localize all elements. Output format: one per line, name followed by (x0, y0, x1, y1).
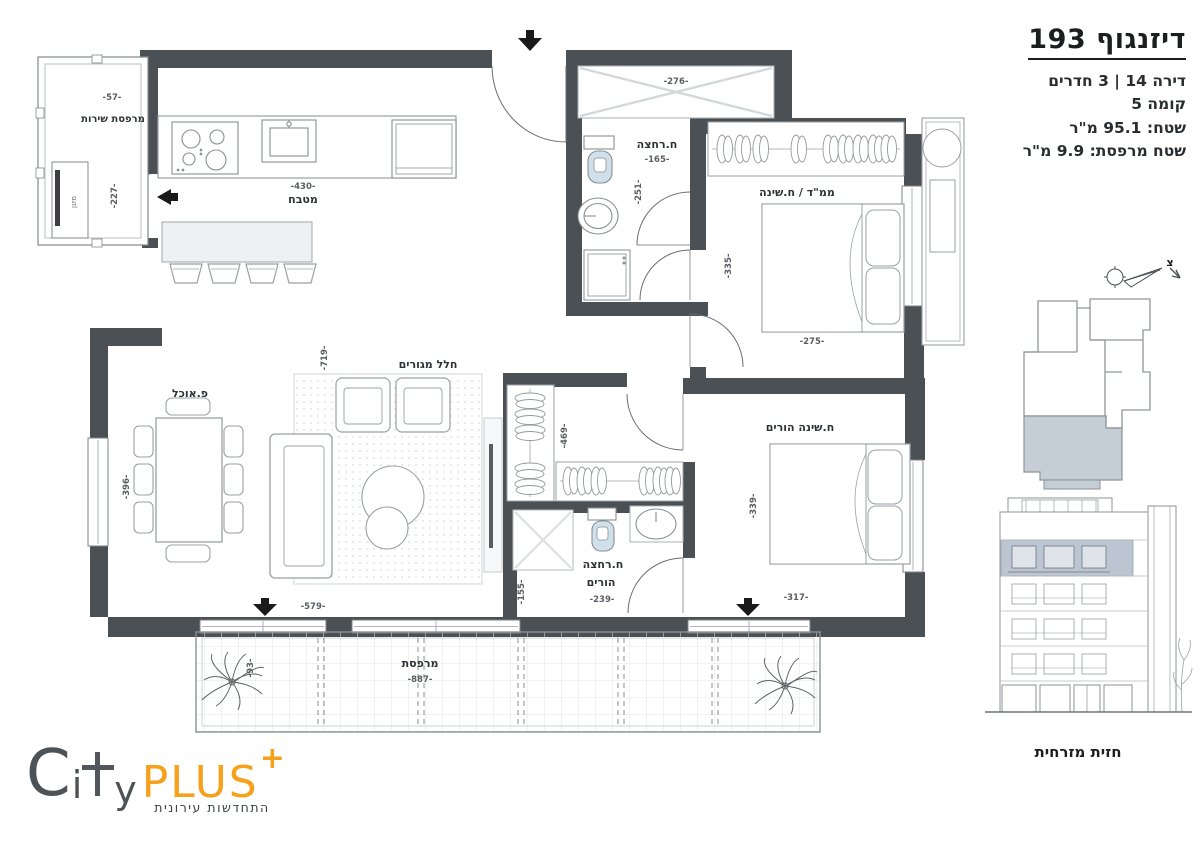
logo-word-plus: PLUS (142, 765, 259, 800)
parents-bedroom-dim-w: -317- (784, 593, 809, 603)
key-plan: צ (1024, 256, 1180, 489)
parents-bathroom-dim-w: -239- (590, 595, 615, 605)
parents-bathroom-dim-h: -155- (517, 579, 527, 604)
living-dim-h: -719- (320, 345, 330, 370)
entrance (518, 30, 542, 51)
parents-bedroom-label: ח.שינה הורים (766, 421, 835, 434)
bathroom-dim-h: -251- (634, 179, 644, 204)
mamad-dim-h: -335- (724, 253, 734, 278)
parents-bedroom: ח.שינה הורים -339- -317- (736, 421, 910, 616)
parents-bathroom-label-2: הורים (587, 576, 616, 589)
mamad-bedroom: ממ"ד / ח.שינה -335- -275- (708, 122, 904, 347)
kitchen-dim: -430- (291, 182, 316, 192)
bedroom-closet (708, 122, 904, 176)
shower-icon (513, 510, 573, 570)
north-arrow-icon (1104, 266, 1180, 288)
building-elevation: חזית מזרחית (985, 498, 1192, 761)
tv-unit-icon (484, 418, 502, 572)
service-balcony: מזגן -57- מרפסת שירות -227- (36, 55, 148, 247)
logo-letter-c: C (26, 748, 71, 800)
service-balcony-dim-w: -57- (103, 93, 122, 103)
bathroom: ח.רחצה -165- -251- (578, 136, 677, 300)
floor-info: קומה 5 (1023, 93, 1186, 116)
kitchen-island (162, 222, 316, 283)
balcony-label: מרפסת (402, 657, 439, 670)
condenser-balcony (922, 118, 964, 345)
kitchen: -430- מטבח (157, 116, 456, 283)
apartment-info: דירה 14 | 3 חדרים (1023, 70, 1186, 93)
dining-area: פ.אוכל -396- (122, 387, 243, 562)
mamad-label: ממ"ד / ח.שינה (759, 186, 835, 199)
parents-bedroom-dim-h: -339- (749, 493, 759, 518)
logo-letter-y: y (114, 780, 137, 801)
balcony-exit-arrow (253, 604, 277, 616)
coffee-table-icon (366, 507, 408, 549)
balcony-area-info: שטח מרפסת: 9.9 מ"ר (1023, 140, 1186, 163)
kitchen-label: מטבח (288, 193, 318, 206)
balcony-dim-h: -93- (246, 658, 256, 677)
service-door-arrow (157, 189, 171, 205)
elevation-caption: חזית מזרחית (1034, 743, 1121, 761)
logo-tagline: התחדשות עירונית (132, 800, 292, 815)
cityplus-logo: CiyPLUS+ התחדשות עירונית (26, 748, 286, 815)
living-label: חלל מגורים (399, 358, 458, 371)
balcony-exit-arrow (736, 604, 760, 616)
bed-icon (770, 444, 910, 564)
washer-niche (584, 250, 630, 300)
sofa-icon (270, 434, 332, 578)
bath-sink-icon (578, 198, 618, 234)
highlighted-unit (1024, 416, 1122, 480)
living-room: -719- חלל מגורים -579- (253, 345, 502, 616)
bed-icon (762, 204, 904, 332)
stove-icon (172, 122, 238, 174)
dining-table-icon (156, 418, 222, 542)
bathroom-dim-w: -165- (645, 155, 670, 165)
kitchen-sink-icon (262, 120, 316, 162)
closet-dim: -469- (560, 423, 570, 448)
balcony-dim-w: -887- (408, 675, 433, 685)
service-balcony-label: מרפסת שירות (81, 114, 145, 125)
fridge-icon (392, 120, 456, 178)
storage-closet: -276- (578, 66, 774, 118)
floor-plan-page: { "header": { "title": "דיזנגוף 193", "a… (0, 0, 1200, 849)
bathroom-label: ח.רחצה (637, 138, 678, 151)
ac-unit-label: מזגן (70, 196, 78, 208)
service-balcony-dim-h: -227- (110, 183, 120, 208)
parents-bathroom-label-1: ח.רחצה (583, 558, 624, 571)
balcony: מרפסת -887- -93- (196, 632, 820, 732)
armchair-icon (396, 378, 450, 432)
title-block: דיזנגוף 193 דירה 14 | 3 חדרים קומה 5 שטח… (1023, 24, 1186, 163)
living-dim-w: -579- (301, 602, 326, 612)
ac-unit: מזגן (52, 162, 88, 238)
north-label: צ (1166, 256, 1173, 269)
logo-letter-i: i (72, 770, 83, 800)
storage-dim: -276- (664, 77, 689, 87)
entry-arrow (518, 38, 542, 51)
toilet-icon (588, 508, 616, 551)
logo-plus-t-icon (82, 750, 114, 800)
bath-sink-icon (636, 509, 676, 539)
dining-dim-h: -396- (122, 474, 132, 499)
logo-plus-mark: + (260, 744, 285, 774)
toilet-icon (584, 136, 614, 183)
mamad-dim-w: -275- (800, 337, 825, 347)
area-info: שטח: 95.1 מ"ר (1023, 117, 1186, 140)
plan-drawing: מזגן -57- מרפסת שירות -227- -430- מטבח (0, 0, 1200, 849)
armchair-icon (336, 378, 390, 432)
parents-bathroom: ח.רחצה הורים -239- -155- (513, 506, 683, 605)
project-title: דיזנגוף 193 (1028, 24, 1186, 60)
